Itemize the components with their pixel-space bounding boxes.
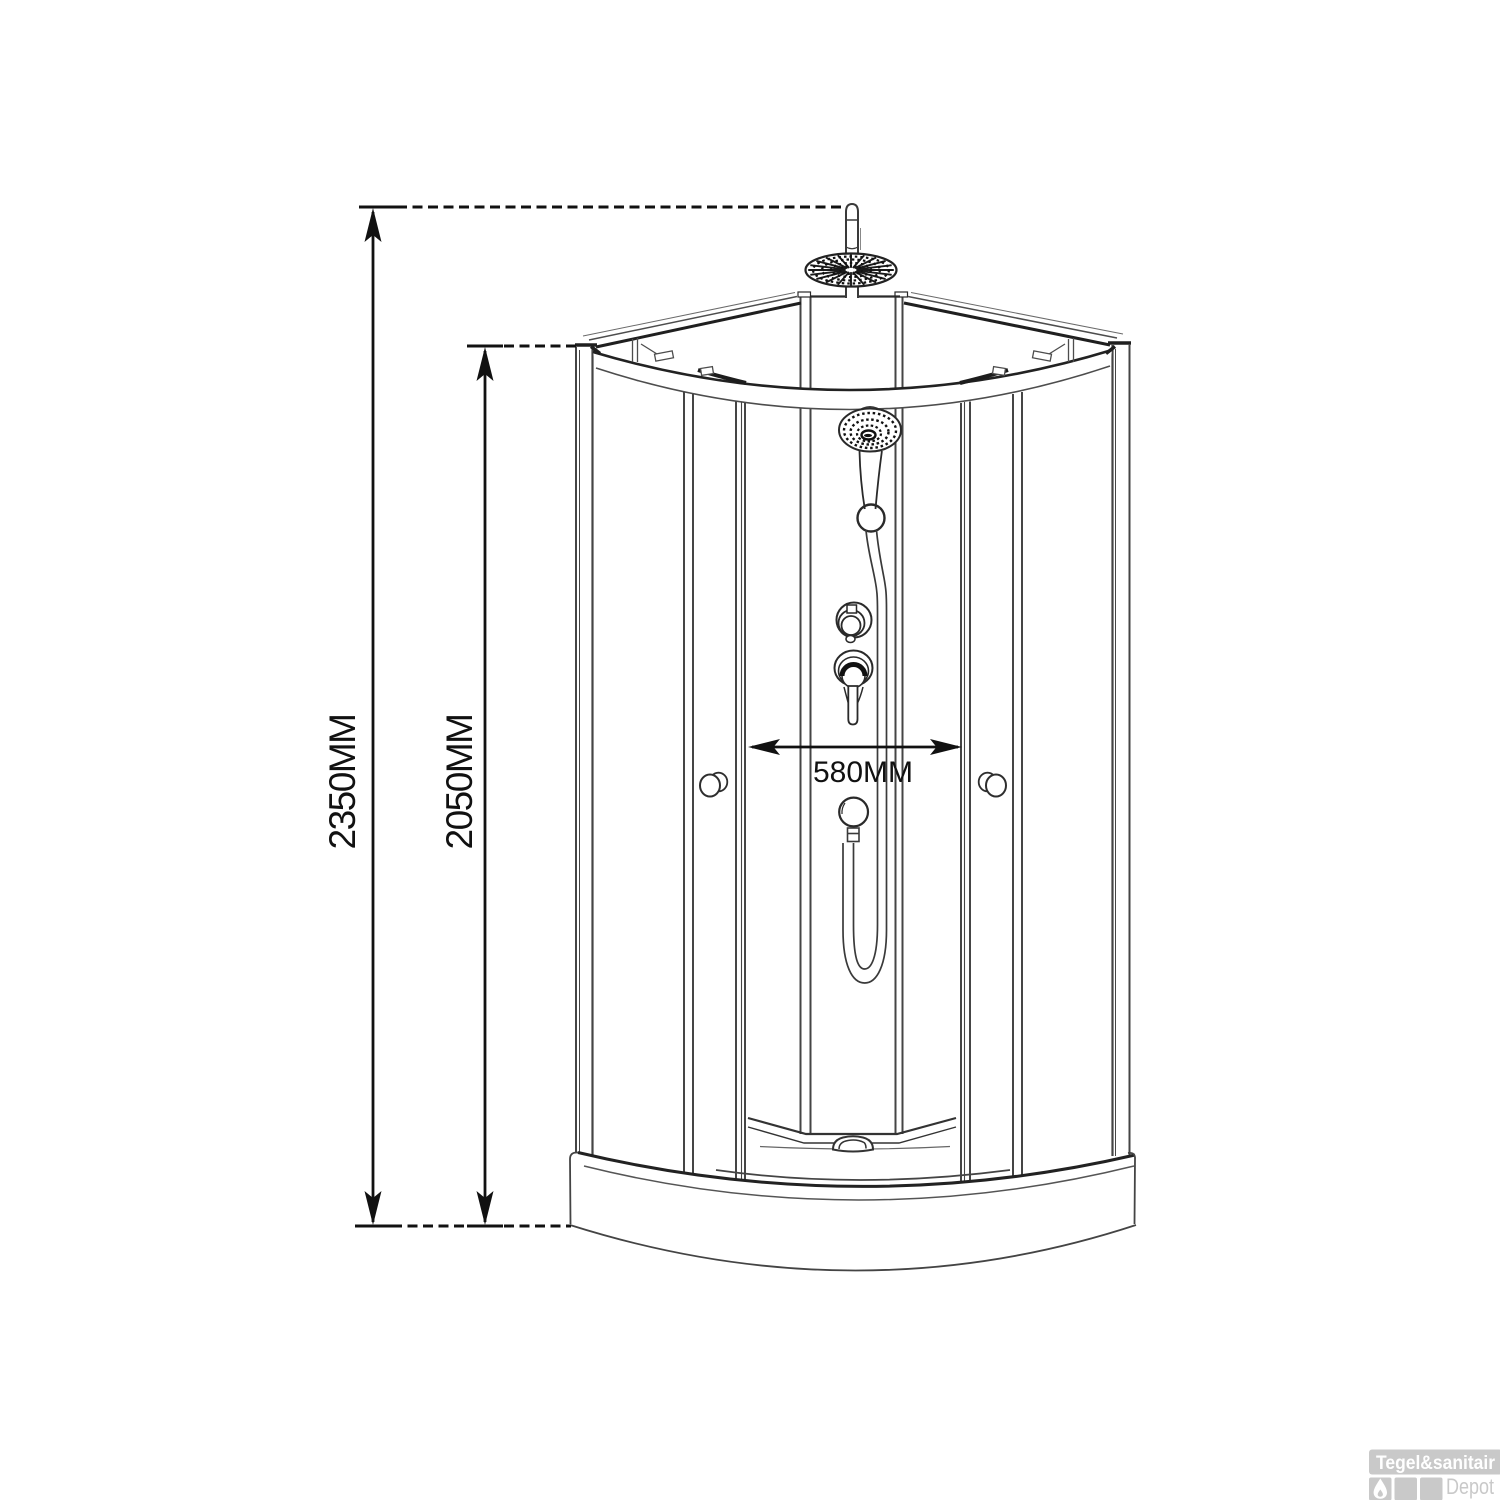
svg-text:Depot: Depot: [1446, 1474, 1494, 1499]
svg-text:2050MM: 2050MM: [439, 715, 480, 850]
svg-text:Tegel&sanitair: Tegel&sanitair: [1376, 1452, 1495, 1474]
svg-text:2350MM: 2350MM: [322, 715, 363, 850]
svg-text:580MM: 580MM: [813, 756, 913, 789]
